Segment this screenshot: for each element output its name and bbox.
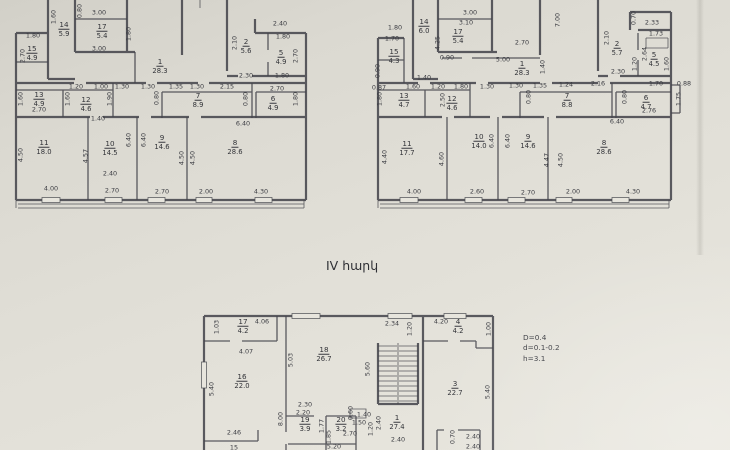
room-area: 8.8 bbox=[562, 100, 573, 108]
dim-label: 1.60 bbox=[406, 84, 420, 91]
room-number: 4 bbox=[455, 318, 462, 327]
room-area: 6.0 bbox=[419, 26, 430, 34]
room-label-upper-left-2: 25.6 bbox=[241, 38, 252, 55]
dim-label: 1.20 bbox=[431, 84, 445, 91]
room-label-bottom-18: 1826.7 bbox=[316, 346, 331, 363]
room-area: 4.3 bbox=[389, 56, 400, 64]
room-area: 28.3 bbox=[152, 66, 167, 74]
dim-label: 4.25 bbox=[435, 36, 442, 50]
room-area: 28.3 bbox=[514, 68, 529, 76]
room-number: 12 bbox=[80, 96, 91, 105]
dim-label: 1.70 bbox=[649, 81, 663, 88]
room-area: 28.6 bbox=[596, 147, 611, 155]
dim-label: 1.20 bbox=[368, 422, 375, 436]
room-label-upper-right-2: 25.7 bbox=[612, 40, 623, 57]
dim-label: 1.35 bbox=[169, 84, 183, 91]
dim-label: 3.00 bbox=[92, 46, 106, 53]
dim-label: 0.80 bbox=[77, 4, 84, 18]
room-area: 4.9 bbox=[276, 57, 287, 65]
room-label-upper-right-1: 128.3 bbox=[514, 60, 529, 77]
room-number: 7 bbox=[564, 92, 571, 101]
dim-label: 2.30 bbox=[298, 402, 312, 409]
dim-label: 2.50 bbox=[440, 93, 447, 107]
dim-label: 1.00 bbox=[94, 84, 108, 91]
dim-label: 4.50 bbox=[179, 151, 186, 165]
dim-label: 3.10 bbox=[459, 20, 473, 27]
room-area: 3.9 bbox=[300, 424, 311, 432]
dim-label: 2.70 bbox=[20, 49, 27, 63]
dim-label: 2.40 bbox=[466, 444, 480, 450]
dim-label: 1.40 bbox=[417, 75, 431, 82]
room-number: 10 bbox=[473, 133, 484, 142]
room-label-upper-left-11: 1118.0 bbox=[36, 139, 51, 156]
room-label-bottom-3: 322.7 bbox=[447, 380, 462, 397]
dim-label: 5.03 bbox=[288, 353, 295, 367]
room-area: 4.9 bbox=[268, 103, 279, 111]
room-number: 18 bbox=[318, 346, 329, 355]
room-area: 4.2 bbox=[238, 326, 249, 334]
room-label-bottom-17: 174.2 bbox=[237, 318, 248, 335]
dim-label: 2.30 bbox=[611, 69, 625, 76]
note-line-d: d=0.1-0.2 bbox=[523, 343, 560, 353]
dim-label: 1.30 bbox=[190, 84, 204, 91]
room-number: 7 bbox=[195, 92, 202, 101]
dim-label: 2.70 bbox=[270, 86, 284, 93]
dim-label: 4.30 bbox=[626, 189, 640, 196]
room-area: 4.2 bbox=[453, 326, 464, 334]
dim-label: 5.00 bbox=[496, 57, 510, 64]
room-area: 22.7 bbox=[447, 388, 462, 396]
dim-label: 4.47 bbox=[544, 153, 551, 167]
dim-label: 3.00 bbox=[463, 10, 477, 17]
dim-label: 7.00 bbox=[555, 13, 562, 27]
dim-label: 1.50 bbox=[352, 420, 366, 427]
room-area: 4.6 bbox=[81, 104, 92, 112]
room-number: 13 bbox=[33, 91, 44, 100]
dim-label: 2.40 bbox=[273, 21, 287, 28]
dim-label: 1.90 bbox=[107, 92, 114, 106]
dim-label: 2.40 bbox=[391, 437, 405, 444]
plan-notes: D=0.4 d=0.1-0.2 h=3.1 bbox=[523, 333, 560, 364]
dim-label: 1.24 bbox=[559, 82, 573, 89]
dim-label: 2.10 bbox=[604, 31, 611, 45]
dim-label: 4.57 bbox=[83, 149, 90, 163]
dim-label: 0.80 bbox=[243, 92, 250, 106]
dim-label: 0.87 bbox=[372, 85, 386, 92]
dim-label: 1.20 bbox=[69, 84, 83, 91]
dim-label: 2.76 bbox=[642, 108, 656, 115]
room-label-bottom-19: 193.9 bbox=[299, 416, 310, 433]
dim-label: 1.80 bbox=[388, 25, 402, 32]
dim-label: 4.50 bbox=[18, 148, 25, 162]
dim-label: 6.40 bbox=[505, 134, 512, 148]
dim-label: 1.40 bbox=[540, 60, 547, 74]
dim-label: 2.70 bbox=[293, 49, 300, 63]
dim-label: 2.60 bbox=[470, 189, 484, 196]
dim-label: 1.73 bbox=[649, 31, 663, 38]
room-number: 5 bbox=[651, 51, 658, 60]
dim-label: 2.00 bbox=[566, 189, 580, 196]
dim-label: 2.15 bbox=[220, 84, 234, 91]
room-number: 17 bbox=[237, 318, 248, 327]
dim-label: 2.64 bbox=[642, 47, 649, 61]
room-label-upper-left-15: 154.9 bbox=[26, 45, 37, 62]
room-area: 14.6 bbox=[154, 142, 169, 150]
dim-label: 0.70 bbox=[450, 430, 457, 444]
dim-label: 2.40 bbox=[103, 171, 117, 178]
note-line-D: D=0.4 bbox=[523, 333, 560, 343]
room-number: 17 bbox=[96, 23, 107, 32]
dim-label: 0.80 bbox=[154, 91, 161, 105]
dim-label: 2.34 bbox=[385, 321, 399, 328]
room-label-upper-right-9: 914.6 bbox=[520, 133, 535, 150]
room-label-upper-right-8: 828.6 bbox=[596, 139, 611, 156]
dim-label: 4.30 bbox=[254, 189, 268, 196]
room-label-upper-left-14: 145.9 bbox=[58, 21, 69, 38]
dim-label: 4.40 bbox=[382, 150, 389, 164]
dim-label: 0.90 bbox=[375, 64, 382, 78]
dim-label: 1.70 bbox=[385, 36, 399, 43]
room-area: 4.5 bbox=[649, 59, 660, 67]
room-area: 14.5 bbox=[102, 148, 117, 156]
dim-label: 5.40 bbox=[209, 382, 216, 396]
dim-label: 1.80 bbox=[377, 92, 384, 106]
dim-label: 2.30 bbox=[239, 73, 253, 80]
room-number: 13 bbox=[398, 92, 409, 101]
dim-label: 2.33 bbox=[645, 20, 659, 27]
dim-label: 2.70 bbox=[515, 40, 529, 47]
dim-label: 2.00 bbox=[199, 189, 213, 196]
room-area: 5.4 bbox=[453, 36, 464, 44]
room-number: 6 bbox=[270, 95, 277, 104]
floor-label: IV հարկ bbox=[326, 258, 378, 273]
room-area: 5.6 bbox=[241, 46, 252, 54]
dim-label: 6.40 bbox=[489, 134, 496, 148]
room-label-upper-right-17: 175.4 bbox=[452, 28, 463, 45]
dim-label: 1.80 bbox=[26, 33, 40, 40]
room-number: 10 bbox=[104, 140, 115, 149]
room-number: 1 bbox=[394, 414, 401, 423]
dim-label: 4.60 bbox=[439, 152, 446, 166]
dim-label: 1.40 bbox=[357, 412, 371, 419]
room-number: 12 bbox=[446, 95, 457, 104]
dim-label: 3.00 bbox=[92, 10, 106, 17]
room-area: 5.9 bbox=[59, 29, 70, 37]
room-label-upper-left-7: 78.9 bbox=[193, 92, 204, 109]
room-label-upper-right-5: 54.5 bbox=[649, 51, 660, 68]
dim-label: 2.70 bbox=[105, 188, 119, 195]
dim-label: 1.75 bbox=[676, 92, 683, 106]
dim-label: 5.60 bbox=[365, 362, 372, 376]
room-area: 14.0 bbox=[471, 141, 486, 149]
room-label-upper-right-15: 154.3 bbox=[388, 48, 399, 65]
room-label-upper-left-5: 54.9 bbox=[276, 49, 287, 66]
dim-label: 1.03 bbox=[214, 320, 221, 334]
room-label-upper-left-6: 64.9 bbox=[268, 95, 279, 112]
room-label-bottom-16: 1622.0 bbox=[234, 373, 249, 390]
dim-label: 1.30 bbox=[480, 84, 494, 91]
room-area: 18.0 bbox=[36, 147, 51, 155]
room-area: 28.6 bbox=[227, 147, 242, 155]
dim-label: 1.35 bbox=[533, 83, 547, 90]
dim-label: 2.40 bbox=[466, 434, 480, 441]
room-number: 14 bbox=[58, 21, 69, 30]
dim-label: 1.20 bbox=[407, 322, 414, 336]
dim-label: 2.70 bbox=[155, 189, 169, 196]
room-area: 22.0 bbox=[234, 381, 249, 389]
dim-label: 2.20 bbox=[296, 410, 310, 417]
room-label-upper-left-1: 128.3 bbox=[152, 58, 167, 75]
dim-label: 2.40 bbox=[376, 416, 383, 430]
dim-label: 1.60 bbox=[664, 57, 671, 71]
room-number: 19 bbox=[299, 416, 310, 425]
dim-label: 4.20 bbox=[434, 319, 448, 326]
dim-label: 1.20 bbox=[632, 57, 639, 71]
dim-label: 4.50 bbox=[558, 153, 565, 167]
dim-label: 2.70 bbox=[521, 190, 535, 197]
room-number: 8 bbox=[232, 139, 239, 148]
room-area: 27.4 bbox=[389, 422, 404, 430]
blueprint-page: 145.9175.4154.9128.325.654.9134.9124.678… bbox=[0, 0, 730, 450]
dim-label: 1.30 bbox=[509, 83, 523, 90]
dim-label: 1.00 bbox=[486, 322, 493, 336]
room-number: 11 bbox=[38, 139, 49, 148]
dim-label: 1.80 bbox=[454, 84, 468, 91]
room-label-upper-right-12: 124.6 bbox=[446, 95, 457, 112]
room-number: 1 bbox=[519, 60, 526, 69]
dim-label: 2.70 bbox=[32, 107, 46, 114]
plan-labels: 145.9175.4154.9128.325.654.9134.9124.678… bbox=[0, 0, 730, 450]
note-line-h: h=3.1 bbox=[523, 354, 560, 364]
dim-label: 6.40 bbox=[610, 119, 624, 126]
dim-label: 5.40 bbox=[485, 385, 492, 399]
room-number: 16 bbox=[236, 373, 247, 382]
dim-label: 1.60 bbox=[18, 92, 25, 106]
dim-label: 1.80 bbox=[275, 73, 289, 80]
room-number: 1 bbox=[157, 58, 164, 67]
dim-label: 1.60 bbox=[65, 92, 72, 106]
dim-label: 6.40 bbox=[236, 121, 250, 128]
room-area: 4.7 bbox=[399, 100, 410, 108]
dim-label: 6.40 bbox=[126, 133, 133, 147]
dim-label: 1.60 bbox=[51, 10, 58, 24]
room-label-upper-right-13: 134.7 bbox=[398, 92, 409, 109]
dim-label: 6.40 bbox=[141, 133, 148, 147]
dim-label: 2.16 bbox=[591, 81, 605, 88]
room-area: 14.6 bbox=[520, 141, 535, 149]
dim-label: 4.00 bbox=[407, 189, 421, 196]
room-number: 2 bbox=[614, 40, 621, 49]
dim-label: 2.10 bbox=[232, 36, 239, 50]
room-label-upper-right-11: 1117.7 bbox=[399, 140, 414, 157]
dim-label: 1.30 bbox=[141, 84, 155, 91]
room-label-upper-left-8: 828.6 bbox=[227, 139, 242, 156]
room-label-bottom-4: 44.2 bbox=[453, 318, 464, 335]
room-number: 3 bbox=[452, 380, 459, 389]
room-number: 20 bbox=[335, 416, 346, 425]
dim-label: 0.90 bbox=[440, 55, 454, 62]
room-label-upper-left-9: 914.6 bbox=[154, 134, 169, 151]
dim-label: 1.80 bbox=[126, 27, 133, 41]
paper-crease bbox=[696, 0, 704, 255]
room-label-bottom-1: 127.4 bbox=[389, 414, 404, 431]
dim-label: 1.30 bbox=[115, 84, 129, 91]
dim-label: 2.46 bbox=[227, 430, 241, 437]
dim-label: 4.00 bbox=[44, 186, 58, 193]
room-label-upper-right-7: 78.8 bbox=[562, 92, 573, 109]
room-area: 5.4 bbox=[97, 31, 108, 39]
room-number: 2 bbox=[243, 38, 250, 47]
dim-label: 2.70 bbox=[343, 431, 357, 438]
dim-label: 15 bbox=[230, 445, 238, 450]
dim-label: 4.06 bbox=[255, 319, 269, 326]
room-number: 9 bbox=[159, 134, 166, 143]
dim-label: 4.50 bbox=[190, 151, 197, 165]
dim-label: 0.80 bbox=[526, 90, 533, 104]
dim-label: 8.00 bbox=[278, 412, 285, 426]
room-area: 8.9 bbox=[193, 100, 204, 108]
room-number: 11 bbox=[401, 140, 412, 149]
room-number: 8 bbox=[601, 139, 608, 148]
room-number: 15 bbox=[388, 48, 399, 57]
dim-label: 1.80 bbox=[293, 92, 300, 106]
room-label-upper-right-10: 1014.0 bbox=[471, 133, 486, 150]
room-label-upper-left-10: 1014.5 bbox=[102, 140, 117, 157]
room-area: 26.7 bbox=[316, 354, 331, 362]
dim-label: 5.20 bbox=[327, 444, 341, 450]
room-number: 17 bbox=[452, 28, 463, 37]
room-area: 4.6 bbox=[447, 103, 458, 111]
dim-label: 1.80 bbox=[276, 34, 290, 41]
dim-label: 4.07 bbox=[239, 349, 253, 356]
dim-label: 1.40 bbox=[91, 116, 105, 123]
room-label-upper-left-17: 175.4 bbox=[96, 23, 107, 40]
dim-label: 0.80 bbox=[622, 90, 629, 104]
room-number: 14 bbox=[418, 18, 429, 27]
dim-label: 0.70 bbox=[631, 11, 638, 25]
room-number: 6 bbox=[643, 94, 650, 103]
room-area: 5.7 bbox=[612, 48, 623, 56]
room-number: 9 bbox=[525, 133, 532, 142]
room-area: 17.7 bbox=[399, 148, 414, 156]
room-number: 5 bbox=[278, 49, 285, 58]
room-area: 4.9 bbox=[27, 53, 38, 61]
room-number: 15 bbox=[26, 45, 37, 54]
room-label-upper-right-14: 146.0 bbox=[418, 18, 429, 35]
dim-label: 0.88 bbox=[677, 81, 691, 88]
room-label-upper-left-12: 124.6 bbox=[80, 96, 91, 113]
